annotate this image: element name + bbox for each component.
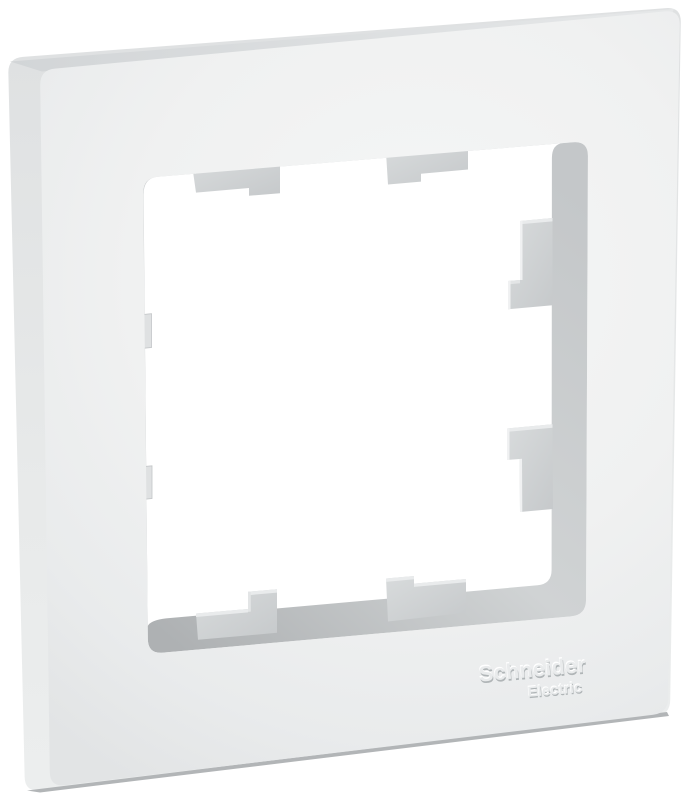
opening-window xyxy=(144,143,563,626)
product-photo: Schneider Schneider Schneider Electric E… xyxy=(0,0,686,800)
wall-plate-frame-image: Schneider Schneider Schneider Electric E… xyxy=(0,0,686,800)
